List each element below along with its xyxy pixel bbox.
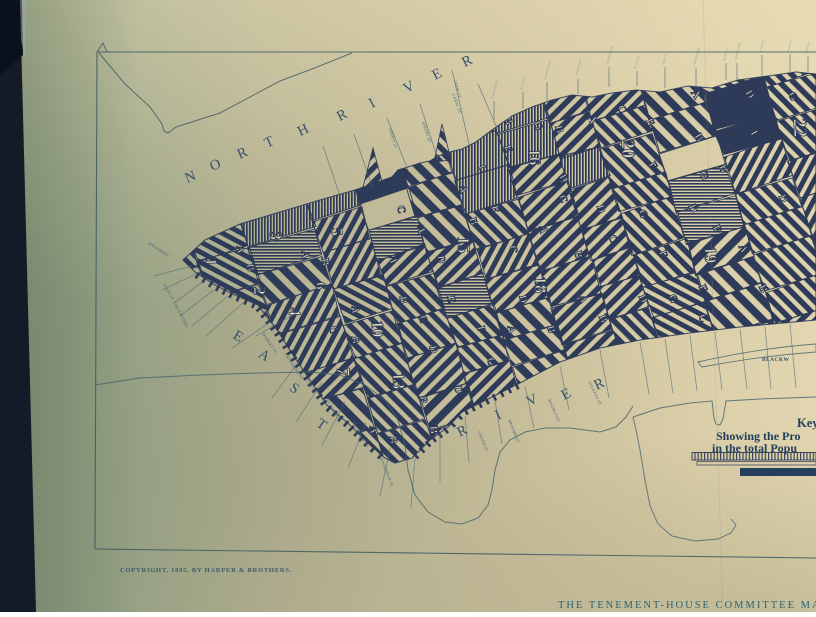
svg-text:22: 22 [789, 118, 811, 138]
svg-text:15: 15 [454, 236, 474, 254]
svg-text:10: 10 [368, 320, 388, 338]
svg-text:A: A [367, 425, 380, 434]
svg-text:16: 16 [525, 148, 545, 166]
svg-text:6: 6 [312, 282, 328, 291]
svg-text:18: 18 [531, 276, 551, 294]
svg-text:A: A [299, 250, 312, 259]
svg-text:4: 4 [285, 307, 304, 317]
svg-text:3: 3 [266, 231, 285, 240]
svg-text:19: 19 [701, 246, 721, 264]
svg-text:13: 13 [389, 372, 409, 390]
svg-text:COPYRIGHT, 1895, BY HARPER & B: COPYRIGHT, 1895, BY HARPER & BROTHERS. [120, 567, 292, 574]
svg-text:A: A [349, 305, 362, 314]
svg-text:B: B [427, 425, 442, 434]
svg-text:THE TENEMENT-HOUSE COMMITTEE M: THE TENEMENT-HOUSE COMMITTEE MAP OF [558, 600, 816, 611]
svg-text:C: C [327, 325, 340, 334]
svg-text:5: 5 [327, 227, 346, 236]
svg-text:Key: Key [797, 416, 816, 430]
svg-text:BLACKW: BLACKW [762, 357, 790, 363]
svg-text:20: 20 [617, 139, 639, 159]
svg-text:1: 1 [202, 258, 219, 267]
svg-text:A: A [387, 255, 400, 264]
svg-text:D: D [451, 385, 464, 395]
svg-text:2: 2 [250, 286, 269, 295]
